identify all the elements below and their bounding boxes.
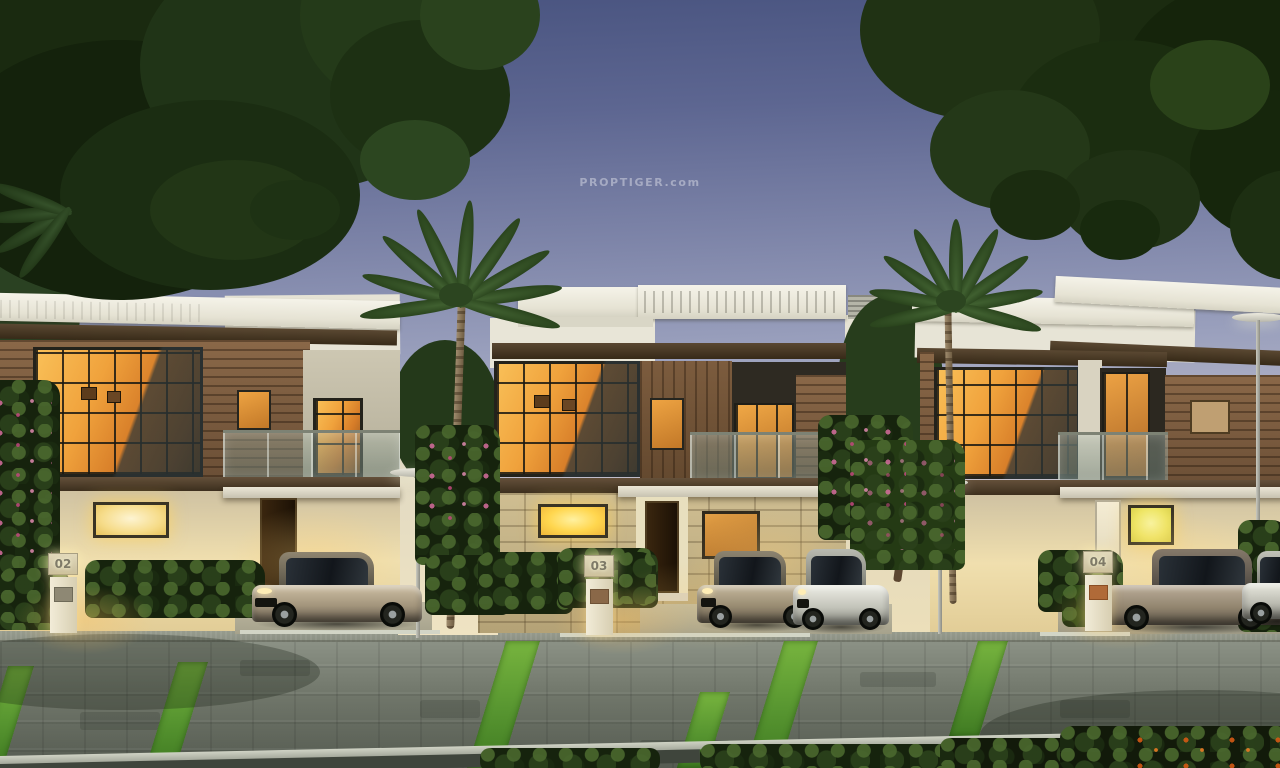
foliage-blob (250, 180, 340, 240)
car-wheel (1124, 605, 1149, 630)
sign-plaque (590, 589, 609, 604)
wall-art (562, 399, 576, 411)
villa-number: 03 (591, 559, 608, 573)
house-02-balcony-glass (223, 430, 400, 478)
house-03-fascia (492, 343, 846, 359)
car-window (286, 558, 368, 587)
villa-number-plate: 02 (48, 553, 78, 575)
pink-flowers (422, 438, 492, 528)
villa-sign-03: 03 (584, 555, 620, 637)
villa-dusk-render: PROPTIGER.com (0, 0, 1280, 768)
sedan-car-5 (1242, 548, 1280, 624)
car-window (719, 557, 781, 587)
hedge (618, 552, 656, 604)
foliage-blob (1150, 40, 1270, 130)
car-window (1159, 556, 1245, 587)
villa-number-plate: 03 (584, 555, 614, 577)
wall-art (81, 387, 97, 400)
car-wheel (709, 605, 732, 628)
palm-crown (936, 290, 966, 312)
car-headlight (798, 589, 807, 595)
hedge (85, 560, 265, 618)
car-wheel (380, 602, 405, 627)
house-04-lit-window (1128, 505, 1174, 545)
villa-number: 02 (55, 557, 72, 571)
pink-flowers (0, 395, 52, 555)
paver-patch (860, 672, 936, 687)
villa-number-plate: 04 (1083, 551, 1113, 573)
car-window (811, 556, 862, 587)
house-03-window-reflection (494, 361, 640, 477)
villa-number: 04 (1090, 555, 1107, 569)
sign-pillar (1085, 575, 1112, 631)
car-wheel (802, 608, 824, 630)
wall-art (107, 391, 121, 403)
sedan-car-3 (793, 546, 889, 630)
sedan-car-1 (252, 549, 422, 627)
house-04-fascia (917, 348, 1167, 367)
foliage-blob (360, 120, 470, 200)
wall-art (534, 395, 550, 408)
house-04-balcony-glass (1058, 432, 1168, 482)
pink-flowers (860, 455, 955, 550)
sign-pillar (50, 577, 77, 633)
house-02-lit-window (93, 502, 169, 538)
watermark-text: PROPTIGER.com (556, 176, 724, 194)
foliage-blob (990, 170, 1080, 240)
sign-pillar (586, 579, 613, 635)
foreground-shrubs (480, 748, 660, 768)
house-03-accent-window (650, 398, 684, 450)
house-03-lit-window (538, 504, 608, 538)
car-grille (797, 599, 809, 608)
orange-flowers (1130, 732, 1280, 768)
house-03-pergola-slats (644, 291, 842, 313)
foliage-blob (1080, 200, 1160, 260)
villa-sign-04: 04 (1083, 551, 1119, 633)
sign-plaque (54, 587, 73, 602)
house-04-wall-niche (1190, 400, 1230, 434)
car-window (1260, 557, 1280, 585)
paver-patch (80, 712, 160, 730)
villa-sign-02: 02 (48, 553, 84, 635)
foreground-shrubs (700, 744, 960, 768)
house-02-accent-window (237, 390, 271, 430)
paver-patch (420, 700, 480, 718)
house-03-entry-canopy (618, 486, 846, 497)
house-04-entry-canopy (1060, 487, 1280, 498)
sign-plaque (1089, 585, 1108, 600)
house-02-entry-canopy (223, 487, 400, 498)
palm-crown (439, 283, 473, 307)
